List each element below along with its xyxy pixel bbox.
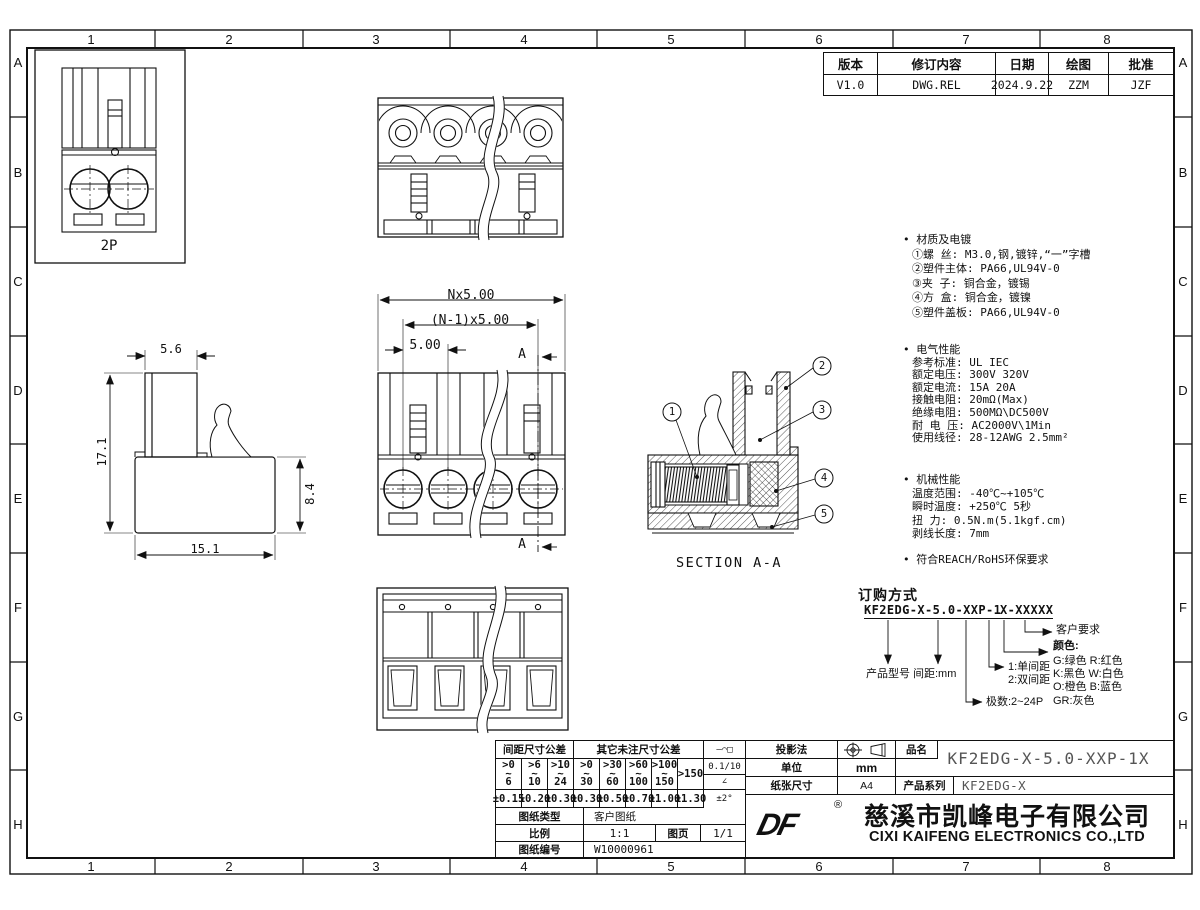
drawing-number-row: 图纸编号 W10000961	[496, 842, 745, 857]
note-mechanical: • 机械性能 温度范围: -40℃~+105℃ 瞬时温度: +250℃ 5秒 扭…	[903, 473, 1066, 541]
zone-col-label: 3	[372, 32, 379, 47]
section-mark-bottom: A	[518, 537, 526, 552]
paper-size-value: A4	[838, 777, 896, 795]
drawing-number-value: W10000961	[584, 842, 745, 857]
zone-col-label: 3	[372, 859, 379, 874]
rev-content: DWG.REL	[878, 75, 996, 95]
dim-pitch: 5.00	[409, 338, 440, 353]
zone-col-label: 5	[667, 859, 674, 874]
drawing-type-row: 图纸类型 客户图纸	[496, 808, 745, 825]
geometry-symbol-column: —⌒□ 0.1/10 ∠ ±2°	[704, 741, 745, 808]
zone-col-label: 7	[962, 859, 969, 874]
company-name-cn: 慈溪市凯峰电子有限公司	[846, 797, 1168, 833]
ordering-product-label: 产品型号	[866, 668, 910, 681]
angle-tolerance: ±2°	[704, 790, 745, 808]
zone-col-label: 8	[1103, 32, 1110, 47]
tol-range: >100 ~ 150	[652, 759, 678, 790]
revision-table: 版本 修订内容 日期 绘图 批准 V1.0 DWG.REL 2024.9.22 …	[823, 52, 1174, 96]
paper-size-label: 纸张尺寸	[746, 777, 838, 795]
zone-row-label: B	[1179, 165, 1188, 180]
dim-total-height: 17.1	[95, 438, 109, 467]
tol-other-header: 其它未注尺寸公差	[574, 741, 704, 759]
series-value: KF2EDG-X	[954, 777, 1175, 795]
note-material: • 材质及电镀 ①螺 丝: M3.0,钢,镀锌,“一”字槽 ②塑件主体: PA6…	[903, 233, 1090, 321]
scale-label: 比例	[496, 825, 584, 842]
zone-row-label: F	[1179, 600, 1187, 615]
zone-row-label: D	[13, 383, 22, 398]
view-section	[648, 357, 833, 533]
rev-header-approved: 批准	[1109, 53, 1173, 75]
zone-col-label: 1	[87, 859, 94, 874]
rev-header-content: 修订内容	[878, 53, 996, 75]
zone-col-label: 2	[225, 32, 232, 47]
tol-value: ±1.30	[678, 790, 704, 808]
straightness-arc-square-icon: —⌒□	[704, 741, 745, 759]
note-mechanical-title: 机械性能	[916, 473, 960, 486]
zone-row-label: A	[14, 55, 23, 70]
tol-range: >0 ~ 30	[574, 759, 600, 790]
info-section: 投影法 单位 mm 纸张尺寸 A4 KF2EDG-X-5.0-XXP-1X 品名…	[746, 741, 1173, 857]
company-block: DF ® 慈溪市凯峰电子有限公司 CIXI KAIFENG ELECTRONIC…	[746, 795, 1173, 857]
unit-value: mm	[838, 759, 896, 777]
registered-mark-icon: ®	[834, 799, 842, 811]
tol-range: >150	[678, 759, 704, 790]
dim-center-span: (N-1)x5.00	[431, 313, 509, 328]
balloon-5: 5	[815, 505, 833, 523]
ordering-code-suffix: X-XXXXX	[1000, 603, 1053, 619]
unit-label: 单位	[746, 759, 838, 777]
tol-range: >0 ~ 6	[496, 759, 522, 790]
zone-col-label: 5	[667, 32, 674, 47]
zone-col-label: 7	[962, 32, 969, 47]
company-logo: DF	[754, 807, 800, 843]
note-compliance: • 符合REACH/RoHS环保要求	[903, 551, 1048, 567]
rev-date: 2024.9.22	[996, 75, 1049, 95]
rev-header-drawn: 绘图	[1049, 53, 1109, 75]
note-material-title: 材质及电镀	[916, 233, 971, 246]
projection-label: 投影法	[746, 741, 838, 759]
tol-range: >6 ~ 10	[522, 759, 548, 790]
balloon-3: 3	[813, 401, 831, 419]
tol-range: >10 ~ 24	[548, 759, 574, 790]
dim-overall-width: Nx5.00	[448, 288, 495, 303]
projection-symbol-icon	[838, 741, 896, 759]
view-top	[376, 96, 565, 240]
ordering-spacing1-label: 1:单间距	[1008, 661, 1050, 674]
zone-row-label: E	[1179, 491, 1188, 506]
note-material-body: ①螺 丝: M3.0,钢,镀锌,“一”字槽 ②塑件主体: PA66,UL94V-…	[912, 248, 1090, 321]
scale-row: 比例 1:1 图页 1/1	[496, 825, 745, 842]
zone-row-label: G	[13, 709, 23, 724]
view-label-2p: 2P	[101, 238, 118, 254]
note-electrical-body: 参考标准: UL IEC 额定电压: 300V 320V 额定电流: 15A 2…	[912, 357, 1069, 445]
view-front	[378, 294, 565, 552]
zone-col-label: 8	[1103, 859, 1110, 874]
ordering-customer-label: 客户要求	[1056, 624, 1100, 637]
tol-pitch-header: 间距尺寸公差	[496, 741, 574, 759]
bullet-icon: •	[903, 553, 910, 566]
zone-row-label: G	[1178, 709, 1188, 724]
zone-col-label: 6	[815, 859, 822, 874]
tol-range: >30 ~ 60	[600, 759, 626, 790]
ordering-pitch-label: 间距:mm	[913, 668, 956, 681]
zone-col-label: 4	[520, 859, 527, 874]
bullet-icon: •	[903, 473, 910, 486]
drawing-number-label: 图纸编号	[496, 842, 584, 857]
ordering-code-main: KF2EDG-X-5.0-XXP-1	[864, 603, 1001, 619]
title-block: 间距尺寸公差 其它未注尺寸公差 >0 ~ 6 >6 ~ 10 >10 ~ 24 …	[495, 740, 1174, 858]
section-mark-top: A	[518, 347, 526, 362]
zone-row-label: H	[1178, 817, 1187, 832]
zone-col-label: 1	[87, 32, 94, 47]
view-side	[104, 350, 306, 560]
scale-value: 1:1	[584, 825, 656, 842]
balloon-2: 2	[813, 357, 831, 375]
zone-row-label: F	[14, 600, 22, 615]
note-electrical: • 电气性能 参考标准: UL IEC 额定电压: 300V 320V 额定电流…	[903, 344, 1069, 445]
note-compliance-text: 符合REACH/RoHS环保要求	[916, 553, 1048, 566]
angle-icon: ∠	[704, 775, 745, 790]
zone-row-label: D	[1178, 383, 1187, 398]
zone-col-label: 4	[520, 32, 527, 47]
tol-range: >60 ~ 100	[626, 759, 652, 790]
bullet-icon: •	[903, 343, 910, 356]
dim-base-width: 15.1	[191, 542, 220, 556]
tolerance-table: 间距尺寸公差 其它未注尺寸公差 >0 ~ 6 >6 ~ 10 >10 ~ 24 …	[496, 741, 704, 808]
ordering-color-label: 颜色:	[1053, 640, 1079, 653]
rev-approved: JZF	[1109, 75, 1173, 95]
drawing-type-label: 图纸类型	[496, 808, 584, 825]
dim-tower-width: 5.6	[160, 342, 182, 356]
balloon-1: 1	[663, 403, 681, 421]
zone-row-label: B	[14, 165, 23, 180]
balloon-4: 4	[815, 469, 833, 487]
rev-header-version: 版本	[824, 53, 878, 75]
rev-header-date: 日期	[996, 53, 1049, 75]
tolerance-section: 间距尺寸公差 其它未注尺寸公差 >0 ~ 6 >6 ~ 10 >10 ~ 24 …	[496, 741, 746, 857]
zone-row-label: C	[13, 274, 22, 289]
zone-row-label: C	[1178, 274, 1187, 289]
zone-row-label: H	[13, 817, 22, 832]
series-label: 产品系列	[896, 777, 954, 795]
page-label: 图页	[656, 825, 701, 842]
section-title: SECTION A-A	[676, 555, 782, 571]
ordering-poles-label: 极数:2~24P	[986, 696, 1043, 709]
note-electrical-title: 电气性能	[916, 343, 960, 356]
rev-drawn: ZZM	[1049, 75, 1109, 95]
bullet-icon: •	[903, 233, 910, 246]
view-bottom	[377, 586, 568, 733]
ordering-title: 订购方式	[858, 585, 918, 605]
zone-col-label: 2	[225, 859, 232, 874]
zone-row-label: A	[1179, 55, 1188, 70]
dim-base-height: 8.4	[303, 483, 317, 505]
ordering-spacing2-label: 2:双间距	[1008, 674, 1050, 687]
company-name-en: CIXI KAIFENG ELECTRONICS CO.,LTD	[846, 829, 1168, 845]
page-value: 1/1	[701, 825, 745, 842]
drawing-sheet: { "grid": { "cols": ["1","2","3","4","5"…	[0, 0, 1200, 910]
drawing-type-value: 客户图纸	[584, 808, 745, 825]
rev-version: V1.0	[824, 75, 878, 95]
view-2p	[35, 50, 185, 263]
ordering-color-list: G:绿色 R:红色 K:黑色 W:白色 O:橙色 B:蓝色 GR:灰色	[1053, 655, 1124, 708]
flatness-tolerance: 0.1/10	[704, 759, 745, 775]
part-name-label: 品名	[896, 741, 938, 759]
note-mechanical-body: 温度范围: -40℃~+105℃ 瞬时温度: +250℃ 5秒 扭 力: 0.5…	[912, 487, 1066, 541]
zone-col-label: 6	[815, 32, 822, 47]
zone-row-label: E	[14, 491, 23, 506]
